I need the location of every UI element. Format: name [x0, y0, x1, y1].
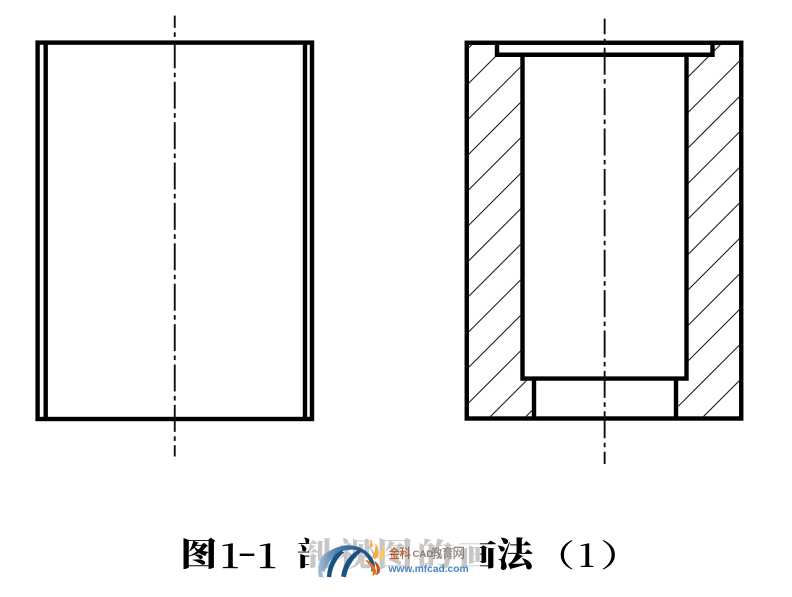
svg-text:CAD: CAD [413, 549, 434, 560]
svg-text:www.mfcad.com: www.mfcad.com [388, 564, 469, 575]
